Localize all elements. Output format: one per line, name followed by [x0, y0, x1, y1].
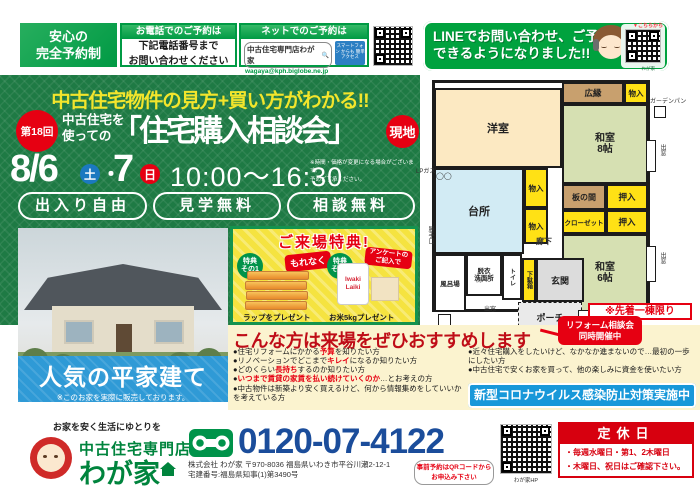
single-story-title: 人気の平家建て: [18, 358, 228, 392]
line-qr-caption: わが家: [642, 66, 656, 72]
list-item: ●リノベーションでどこまでキレイになるか知りたい方: [233, 356, 467, 365]
baywindow-1: [646, 140, 656, 172]
company-line2: 宅建番号:福島県知事(1)第3490号: [188, 470, 390, 480]
holiday-line2: ・木曜日、祝日はご確認下さい。: [565, 461, 692, 472]
room-toilet: トイレ: [502, 254, 522, 300]
line-qr-code: [625, 29, 661, 63]
bubble-l1: 事前予約はQRコードから: [415, 463, 493, 473]
room-closet: クローゼット: [562, 210, 606, 234]
email-text: wagaya@kph.biglobe.ne.jp: [245, 68, 367, 75]
search-box: 中古住宅専門店わが家 🔍: [244, 42, 332, 68]
reservation-badge-line2: 完全予約制: [20, 46, 117, 63]
pill-free-consult: 相談無料: [287, 192, 415, 220]
line-contact-box: LINEでお問い合わせ、ご予約 できるようになりました!! ▼こちらから わが家: [423, 21, 669, 71]
house-icon: [160, 462, 176, 476]
time-note-line2: 予めご了承ください。: [310, 176, 418, 184]
benefit1-badge-l1: 特典: [243, 258, 257, 266]
wrap-product: [247, 271, 309, 280]
freedial-icon: [188, 428, 234, 458]
phone-reservation-line1: 下記電話番号まで: [122, 41, 235, 54]
room-furoba: 風呂場: [434, 254, 466, 312]
room-oshiire-1: 押入: [606, 184, 648, 210]
room-itanoma: 板の間: [562, 184, 606, 210]
holiday-box: 定休日 ・毎週水曜日・第1、2木曜日 ・木曜日、祝日はご確認下さい。: [558, 422, 694, 478]
footer-qr-caption: わが家HP: [500, 476, 552, 484]
event-number-badge: 第18回: [16, 110, 58, 152]
event-date: 8/6: [10, 148, 57, 191]
pill-free-entry: 出入り自由: [18, 192, 147, 220]
time-note: ※時間・価格が変更になる場合がございます。 予めご了承ください。: [310, 159, 418, 184]
baywindow-2: [646, 246, 656, 282]
single-story-note: ※このお家を実際に販売しております。: [18, 392, 228, 403]
net-reservation-header: ネットでのご予約は: [241, 25, 367, 39]
room-monoire-2: 物入: [524, 168, 548, 208]
sunday-circle: 日: [140, 164, 160, 184]
benefit1-caption: ラップをプレゼント: [243, 312, 311, 323]
floor-plan: 洋室 広縁 物入 和室 8帖 台所 物入 物入 板の間 押入 クローゼット 押入…: [432, 80, 674, 312]
washitsu6-l1: 和室: [595, 262, 615, 274]
room-getabako: 下駄箱: [522, 258, 536, 302]
rice-cube: [371, 277, 399, 301]
room-datsui: 脱衣 洗面所: [466, 254, 502, 296]
line-text-1: LINEでお問い合わせ、ご予約: [433, 29, 612, 46]
label-rouka: 廊下: [536, 236, 552, 247]
label-lp-gas: LPガス: [416, 166, 435, 175]
single-story-band: 人気の平家建て ※このお家を実際に販売しております。: [18, 356, 228, 402]
label-demado-2: 出窓: [658, 252, 667, 264]
time-note-line1: ※時間・価格が変更になる場合がございます。: [310, 159, 418, 176]
reform-ribbon: リフォーム相談会 同時開催中: [558, 316, 642, 345]
benefit2-burst: アンケートの ご記入で: [364, 247, 412, 269]
list-item: ●中古物件は新築より安く買えるけど、何から情報集めをしていいかを考えている方: [233, 384, 467, 402]
label-garden-pan: ガーデンパン: [650, 96, 686, 105]
reservation-badge: 安心の 完全予約制: [20, 23, 117, 67]
phone-reservation-header: お電話でのご予約は: [122, 25, 235, 39]
washitsu6-l2: 6帖: [597, 273, 613, 285]
line-contact-text: LINEでお問い合わせ、ご予約 できるようになりました!!: [433, 29, 612, 63]
store-name: わが家: [79, 452, 160, 491]
label-demado-4: 出窓: [484, 304, 496, 313]
covid-notice: 新型コロナウイルス感染防止対策実施中: [468, 383, 696, 408]
store-mascot-logo: [30, 437, 72, 479]
company-info: 株式会社 わが家 〒970-8036 福島県いわき市平谷川瀬2-12-1 宅建番…: [188, 460, 390, 480]
label-sen-pan: 洗パン: [476, 276, 493, 284]
bubble-l2: お申込み下さい: [415, 473, 493, 483]
holiday-title: 定休日: [560, 424, 692, 444]
washitsu8-l1: 和室: [595, 133, 615, 145]
line-qr-label: ▼こちらから: [633, 22, 663, 29]
benefit2-caption: お米5kgプレゼント: [329, 312, 394, 323]
room-oshiire-2: 押入: [606, 210, 648, 234]
phone-reservation-line2: お問い合わせください: [122, 56, 235, 69]
datsui-l1: 脱衣: [478, 268, 491, 275]
net-reservation-box: ネットでのご予約は 中古住宅専門店わが家 🔍 wagaya@kph.biglob…: [239, 23, 369, 67]
saturday-circle: 土: [80, 164, 100, 184]
store-slogan: お家を安く生活にゆとりを: [32, 420, 182, 433]
net-qr-code: [373, 26, 413, 66]
room-kitchen: 台所: [434, 168, 524, 254]
garden-pan-box: [654, 106, 666, 118]
qr-reservation-bubble: 事前予約はQRコードから お申込み下さい: [414, 460, 494, 485]
list-item: ●住宅リフォームにかかる予算を知りたい方: [233, 347, 467, 356]
list-item: ●いつまで賃貸の家賃を払い続けていくのか…とお考えの方: [233, 374, 467, 383]
rice-product: Iwaki Laiki: [337, 263, 369, 305]
gas-stove-icon: ◯◯: [436, 172, 452, 180]
room-western: 洋室: [434, 88, 562, 168]
benefit1-burst: もれなく: [284, 251, 332, 273]
pill-free-tour: 見学無料: [153, 192, 281, 220]
recommend-list-right: ●近々住宅購入をしたいけど、なかなか進まないので…最初の一歩にしたい方 ●中古住…: [468, 347, 696, 374]
list-item: ●近々住宅購入をしたいけど、なかなか進まないので…最初の一歩にしたい方: [468, 347, 696, 365]
phone-reservation-box: お電話でのご予約は 下記電話番号まで お問い合わせください: [120, 23, 237, 67]
label-demado-1: 出窓: [658, 144, 667, 156]
event-title: 「住宅購入相談会」: [112, 106, 388, 150]
reform-ribbon-l2: 同時開催中: [558, 331, 642, 342]
line-text-2: できるようになりました!!: [433, 46, 612, 63]
smartphone-access-tag: スマートフォン からも 簡単アクセス: [335, 41, 365, 65]
recommend-list-left: ●住宅リフォームにかかる予算を知りたい方 ●リノベーションでどこまでキレイになる…: [233, 347, 467, 402]
visitor-benefits-box: ご来場特典! 特典 その1 もれなく ラップをプレゼント 特典 その2 アンケー…: [230, 226, 418, 325]
event-date2: 7: [113, 148, 132, 191]
phone-number: 0120-07-4122: [238, 422, 444, 462]
list-item: ●中古住宅で安くお家を買って、他の楽しみに資金を使いたい方: [468, 365, 696, 374]
line-qr-frame: [621, 24, 665, 68]
holiday-line1: ・毎週水曜日・第1、2木曜日: [565, 447, 692, 458]
room-washitsu8: 和室 8帖: [562, 104, 648, 184]
search-text: 中古住宅専門店わが家: [247, 44, 322, 66]
label-katteguchi: 勝手口: [426, 226, 435, 244]
onsite-badge: 現地: [386, 115, 419, 148]
search-icon: 🔍: [322, 52, 329, 59]
room-monoire-1: 物入: [624, 82, 648, 104]
room-hiroen: 広縁: [562, 82, 624, 104]
washitsu8-l2: 8帖: [597, 144, 613, 156]
reform-ribbon-l1: リフォーム相談会: [558, 320, 642, 331]
room-genkan: 玄関: [536, 258, 584, 302]
company-line1: 株式会社 わが家 〒970-8036 福島県いわき市平谷川瀬2-12-1: [188, 460, 390, 470]
reservation-badge-line1: 安心の: [20, 29, 117, 46]
footer-qr-code: [500, 424, 552, 474]
